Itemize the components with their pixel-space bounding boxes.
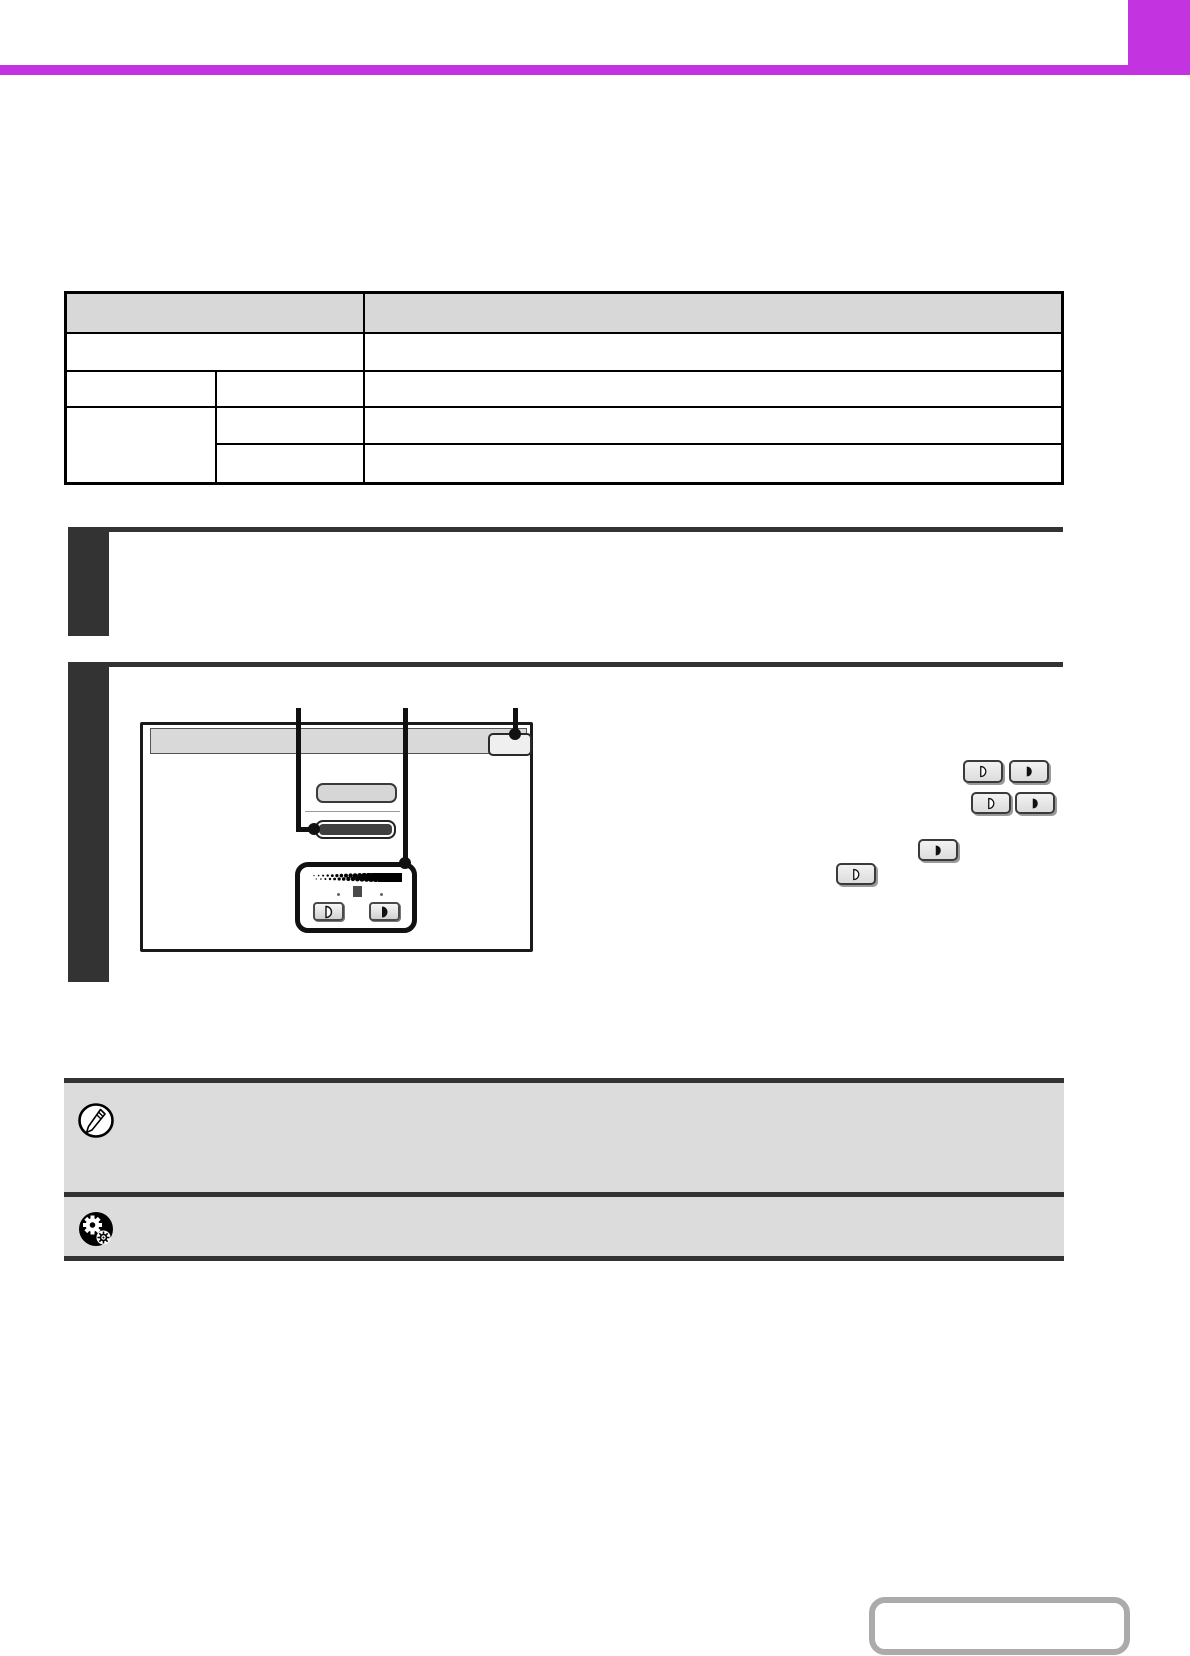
inline-darken-key[interactable] [1009,760,1049,783]
header-accent-bar [0,65,1190,75]
exposure-scale-gradient [310,873,402,882]
inline-darken-key[interactable] [918,839,958,861]
half-disc-outline-icon [851,868,862,881]
table-row-divider [215,443,1061,445]
step1-rule [68,527,1063,532]
callout-line-panel [403,708,408,860]
half-disc-filled-icon [1030,797,1041,810]
darken-button[interactable] [369,902,400,921]
exposure-level-indicator [353,886,362,897]
callout-line-ok [513,708,518,730]
scale-tick [337,893,340,896]
step2-number-box [68,666,109,982]
inline-lighten-key[interactable] [963,760,1003,783]
half-disc-outline-icon [986,797,997,810]
page-link-box[interactable] [869,1597,1130,1655]
step2-rule [68,662,1063,667]
half-disc-outline-icon [978,765,989,778]
table-sub-column-divider [215,370,217,482]
inline-lighten-key[interactable] [971,792,1011,814]
callout-dot-panel [399,857,411,869]
mockup-title-bar [150,728,527,754]
manual-page [0,0,1190,1656]
half-disc-filled-icon [933,844,944,857]
lighten-button[interactable] [313,902,344,921]
pencil-note-icon [78,1103,115,1139]
settings-band [64,1192,1064,1261]
half-disc-filled-icon [1024,765,1035,778]
button-separator [305,811,400,812]
half-disc-filled-icon [379,905,391,919]
touchscreen-mockup [140,722,533,952]
auto-exposure-button[interactable] [316,783,397,803]
manual-exposure-button[interactable] [315,820,396,839]
callout-dot-manual [308,823,320,835]
table-header-row [67,294,1061,334]
scale-tick [380,893,383,896]
exposure-table [64,291,1064,485]
inline-lighten-key[interactable] [836,863,876,885]
header-tab-label [1135,20,1185,50]
callout-dot-ok [509,728,521,740]
callout-line-manual [296,708,301,832]
inline-darken-key[interactable] [1015,792,1055,814]
note-band [64,1078,1064,1192]
step1-number-box [68,531,109,636]
exposure-adjust-panel [295,862,417,933]
half-disc-outline-icon [323,905,335,919]
table-main-column-divider [363,294,365,482]
gears-settings-icon [78,1211,115,1248]
